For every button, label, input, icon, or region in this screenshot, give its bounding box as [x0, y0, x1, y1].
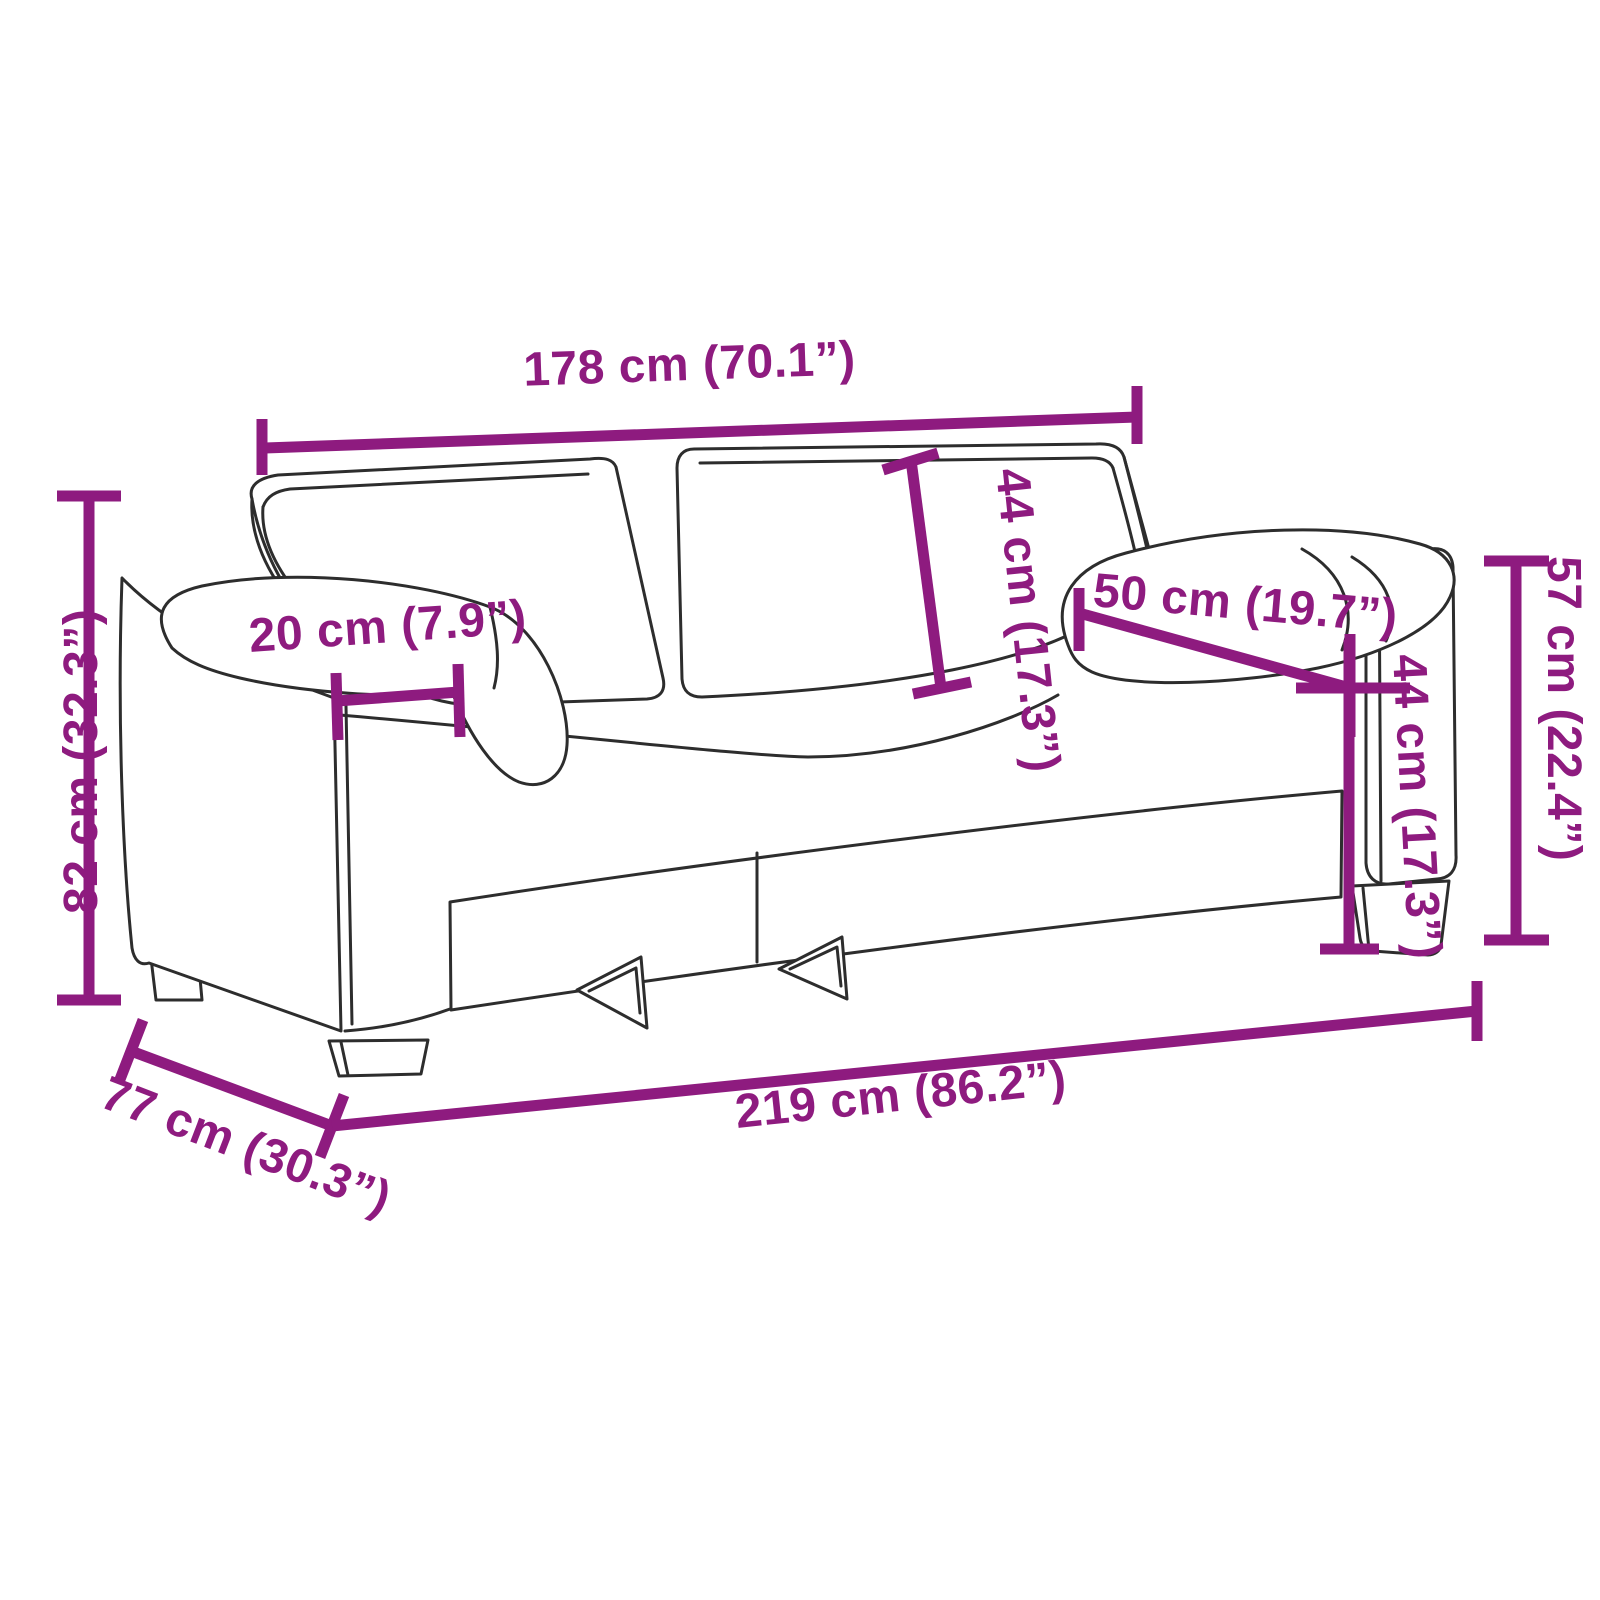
dim-arm-height-label: 57 cm (22.4”)	[1537, 556, 1590, 861]
dimension-diagram: 178 cm (70.1”) 44 cm (17.3”) 50 cm (19.7…	[0, 0, 1600, 1600]
dim-total-height: 82 cm (32.3”)	[55, 496, 121, 1000]
dim-arm-height: 57 cm (22.4”)	[1484, 556, 1590, 940]
dim-back-width-line	[265, 417, 1137, 448]
dim-total-width: 219 cm (86.2”)	[332, 981, 1477, 1139]
seat-bottom-left-edge	[345, 1009, 450, 1031]
dim-backrest-height-tick-bottom	[913, 682, 971, 694]
dim-back-width-label: 178 cm (70.1”)	[522, 332, 856, 397]
diagram-canvas: 178 cm (70.1”) 44 cm (17.3”) 50 cm (19.7…	[0, 0, 1600, 1600]
left-arm-panel-seam	[346, 706, 352, 1024]
dim-armrest-width-tick-right	[458, 664, 460, 737]
seat-skirt	[450, 791, 1342, 1010]
dim-total-height-label: 82 cm (32.3”)	[55, 609, 108, 914]
dim-armrest-width-tick-left	[336, 673, 338, 740]
seat-front-edge	[340, 695, 1058, 757]
sofa-line-art	[120, 444, 1456, 1076]
